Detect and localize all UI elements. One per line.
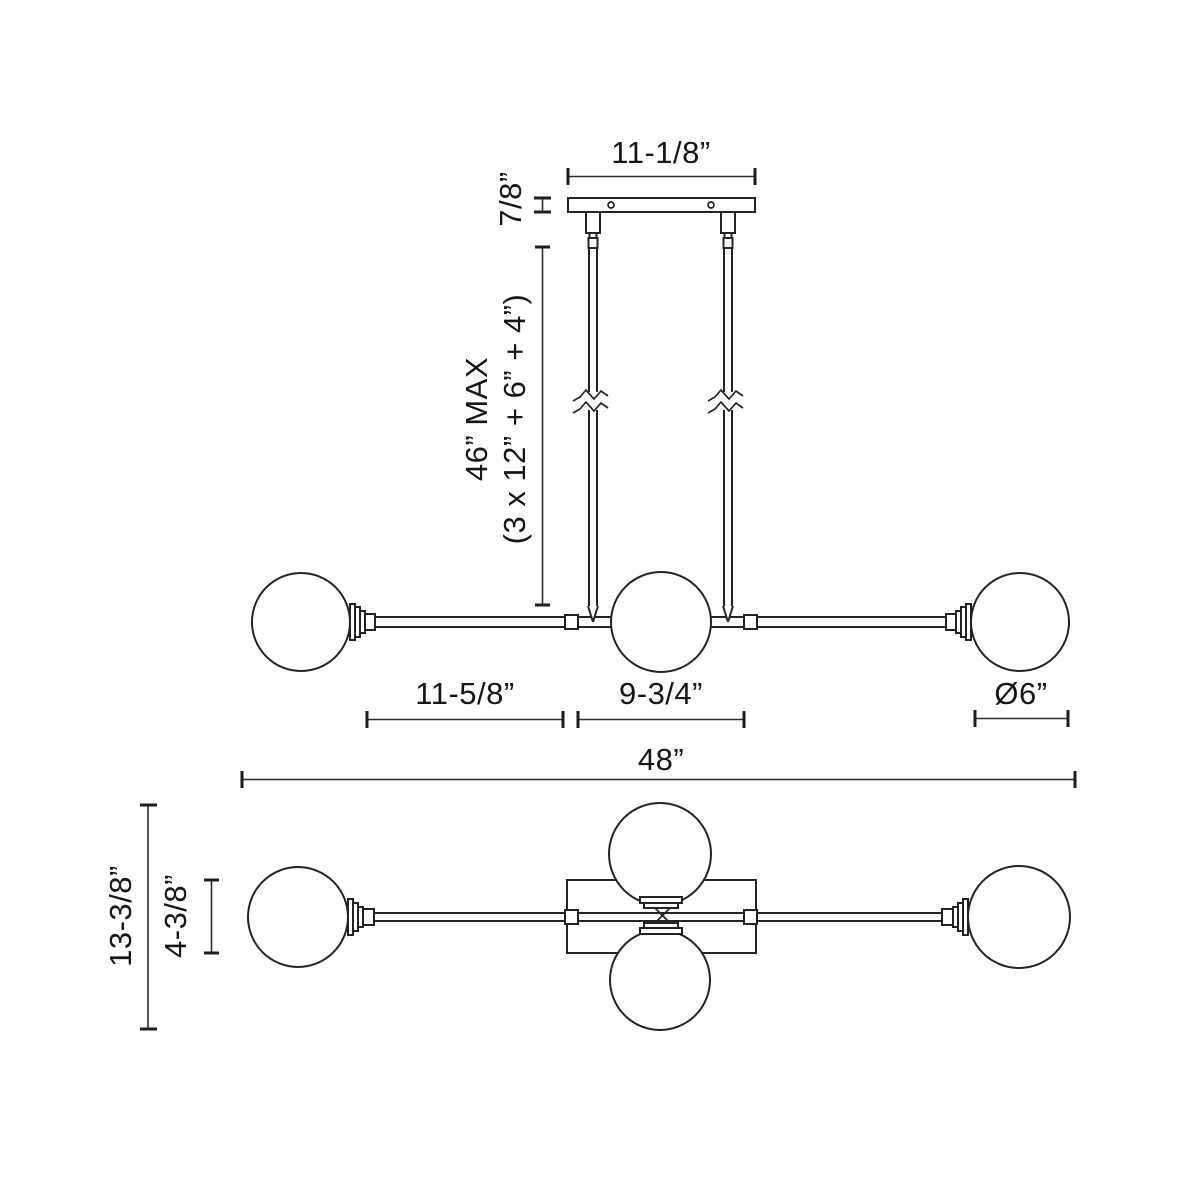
suspension-max-label-line2: (3 x 12” + 6” + 4”) — [497, 294, 532, 545]
fixture-diagram-svg: 11-1/8” 7/8” 46” MAX (3 x 12” + 6” + 4”) — [0, 0, 1200, 1200]
canopy-height-dimension: 7/8” — [493, 171, 551, 226]
globe-fitter-right — [946, 604, 971, 640]
left-arm-dimension: 11-5/8” — [367, 676, 563, 728]
fitter-plate — [644, 903, 678, 908]
suspension-rod-right — [708, 212, 743, 622]
center-span-dimension: 9-3/4” — [578, 676, 744, 728]
globe-left-plan — [248, 867, 348, 967]
globe-left — [252, 573, 350, 671]
canopy-height-label: 7/8” — [493, 171, 528, 226]
center-span-label: 9-3/4” — [619, 676, 703, 711]
globe-fitter-left — [350, 604, 375, 640]
canopy-width-dimension: 11-1/8” — [568, 135, 755, 185]
bar-connector-right-plan — [744, 910, 757, 924]
break-symbol — [708, 390, 743, 401]
plan-depth-dimension: 13-3/8” — [103, 805, 157, 1029]
globe-fitter-right-plan — [942, 899, 968, 935]
globe-top-plan — [609, 803, 711, 905]
globe-center — [611, 572, 711, 672]
overall-width-dimension: 48” — [242, 742, 1075, 788]
rod-coupler — [724, 238, 733, 248]
bar-connector-left — [565, 615, 578, 629]
plan-depth-label: 13-3/8” — [103, 865, 138, 967]
break-symbol — [708, 402, 743, 413]
suspension-length-dimension: 46” MAX (3 x 12” + 6” + 4”) — [459, 247, 550, 605]
dimension-drawing-page: 11-1/8” 7/8” 46” MAX (3 x 12” + 6” + 4”) — [0, 0, 1200, 1200]
plan-view: 13-3/8” 4-3/8” — [103, 803, 1070, 1030]
fitter-plate — [640, 928, 682, 934]
break-symbol — [573, 390, 608, 401]
globe-diameter-label: Ø6” — [994, 676, 1047, 711]
left-arm-label: 11-5/8” — [415, 676, 514, 711]
break-symbol — [573, 402, 608, 413]
overall-width-label: 48” — [638, 742, 684, 777]
rod-stem — [721, 212, 735, 233]
rod-coupler — [589, 238, 598, 248]
rod-stem — [586, 212, 600, 233]
canopy-plate — [568, 198, 755, 212]
fitter-hub — [365, 614, 375, 630]
ceiling-canopy — [568, 198, 755, 212]
globe-diameter-dimension: Ø6” — [975, 676, 1068, 727]
globe-right — [971, 573, 1069, 671]
globe-right-plan — [968, 866, 1070, 968]
fitter-hub — [942, 909, 953, 925]
globe-fitter-bottom-plan — [640, 923, 682, 934]
front-view: 11-1/8” 7/8” 46” MAX (3 x 12” + 6” + 4”) — [242, 135, 1075, 788]
globe-fitter-left-plan — [348, 899, 374, 935]
fitter-hub — [946, 614, 956, 630]
suspension-rod-left — [573, 212, 608, 622]
bar-connector-right — [744, 615, 757, 629]
plan-canopy-depth-dimension: 4-3/8” — [158, 874, 219, 958]
plan-canopy-depth-label: 4-3/8” — [158, 874, 193, 958]
fitter-hub — [363, 909, 374, 925]
globe-fitter-top-plan — [640, 897, 682, 908]
canopy-width-label: 11-1/8” — [611, 135, 710, 170]
globe-bottom-plan — [610, 930, 710, 1030]
bar-connector-left-plan — [565, 910, 578, 924]
suspension-max-label-line1: 46” MAX — [459, 357, 494, 481]
